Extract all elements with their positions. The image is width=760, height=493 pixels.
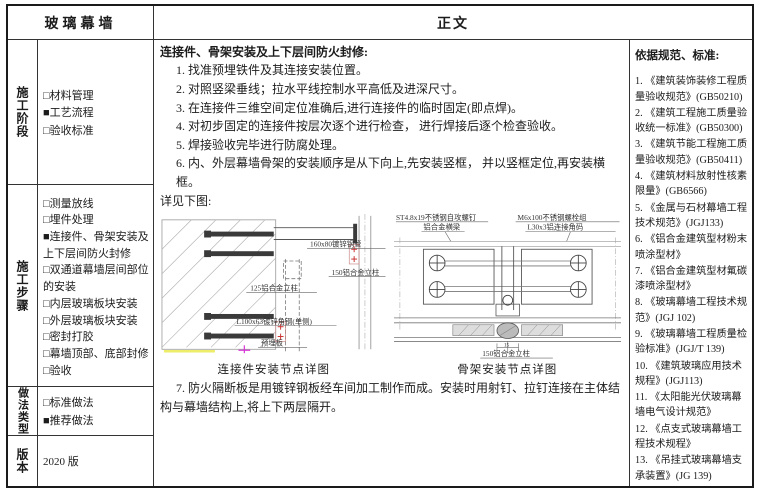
reference-item: 11. 《太阳能光伏玻璃幕墙电气设计规范》 — [635, 390, 748, 421]
checkbox-unchecked-icon: □ — [43, 315, 50, 327]
checkbox-checked-icon: ■ — [43, 107, 50, 119]
checklist-item: □验收标准 — [43, 123, 150, 141]
checklist-item: □标准做法 — [43, 395, 150, 413]
checklist-item-label: 验收 — [50, 365, 72, 377]
checklist-item: □验收 — [43, 363, 150, 380]
reference-item: 4. 《建筑材料放射性核素限量》(GB6566) — [635, 169, 748, 200]
section-label: 做法类型 — [8, 387, 38, 435]
section-label: 版本 — [8, 436, 38, 486]
checklist-item: □测量放线 — [43, 196, 150, 213]
step-1: 1. 找准预埋铁件及其连接安装位置。 — [160, 61, 621, 80]
label-aluminum-beam: 铝合金横梁 — [423, 222, 460, 231]
checklist-item: ■推荐做法 — [43, 413, 150, 431]
reference-item: 2. 《建筑工程施工质量验收统一标准》(GB50300) — [635, 106, 748, 137]
checklist-item: □密封打胶 — [43, 329, 150, 346]
diagram-row: 160x80镀锌钢管 150铝合金立柱 125铝合金立柱 L100x63镀锌角钢… — [160, 212, 621, 377]
section-label: 施工步骤 — [8, 185, 38, 386]
checklist-item-label: 材料管理 — [50, 90, 94, 102]
label-column-150: 150铝合金立柱 — [332, 267, 380, 276]
header-row: 玻璃幕墙 正文 — [8, 6, 752, 40]
section-construction-phase: 施工阶段 □材料管理 ■工艺流程 □验收标准 — [8, 40, 153, 185]
section-version: 版本 2020 版 — [8, 436, 153, 486]
checklist-item-label: 工艺流程 — [50, 107, 94, 119]
diagram-caption-right: 骨架安装节点详图 — [457, 361, 557, 377]
reference-item: 7. 《铝合金建筑型材氟碳漆喷涂型材》 — [635, 264, 748, 295]
diagram-framework-detail: ST4.8x19不锈钢自攻螺钉 铝合金横梁 M6x100不锈钢螺栓组 L30x3… — [394, 212, 622, 377]
checklist-item: ■工艺流程 — [43, 105, 150, 123]
checklist-item: ■连接件、骨架安装及上下层间防火封修 — [43, 229, 150, 262]
checkbox-unchecked-icon: □ — [43, 298, 50, 310]
main-content: 连接件、骨架安装及上下层间防火封修: 1. 找准预埋铁件及其连接安装位置。 2.… — [154, 40, 630, 486]
checklist-item: □内层玻璃板块安装 — [43, 296, 150, 313]
checklist-item: □埋件处理 — [43, 212, 150, 229]
step-4: 4. 对初步固定的连接件按层次逐个进行检查， 进行焊接后逐个检查验收。 — [160, 117, 621, 136]
checkbox-unchecked-icon: □ — [43, 348, 50, 360]
label-angle-steel: L100x63镀锌角钢(单侧) — [236, 316, 312, 325]
checklist-item-label: 验收标准 — [50, 125, 94, 137]
framework-detail-drawing: ST4.8x19不锈钢自攻螺钉 铝合金横梁 M6x100不锈钢螺栓组 L30x3… — [394, 212, 622, 359]
body-row: 施工阶段 □材料管理 ■工艺流程 □验收标准 施工步骤 □测量放线 □埋件处理 … — [8, 40, 752, 486]
checklist-item: □双通道幕墙层间部位的安装 — [43, 262, 150, 295]
label-dimension-15: 15 — [503, 342, 509, 348]
step-6: 6. 内、外层幕墙骨架的安装顺序是从下向上,先安装竖框， 并以竖框定位,再安装横… — [160, 154, 621, 191]
label-stainless-bolt: M6x100不锈钢螺栓组 — [517, 212, 587, 221]
document-sheet: 玻璃幕墙 正文 施工阶段 □材料管理 ■工艺流程 □验收标准 施工步骤 □测量放… — [6, 4, 754, 488]
step-7: 7. 防火隔断板是用镀锌钢板经车间加工制作而成。安装时用射钉、拉钉连接在主体结构… — [160, 379, 621, 417]
checkbox-unchecked-icon: □ — [43, 90, 50, 102]
reference-item: 8. 《玻璃幕墙工程技术规范》(JGJ 102) — [635, 295, 748, 326]
reference-item: 12. 《点支式玻璃幕墙工程技术规程》 — [635, 422, 748, 453]
checkbox-unchecked-icon: □ — [43, 331, 50, 343]
reference-item: 13. 《吊挂式玻璃幕墙支承装置》(JG 139) — [635, 453, 748, 484]
checkbox-checked-icon: ■ — [43, 415, 50, 427]
checkbox-unchecked-icon: □ — [43, 365, 50, 377]
references-title: 依据规范、标准: — [635, 48, 748, 65]
reference-item: 9. 《玻璃幕墙工程质量检验标准》(JGJ/T 139) — [635, 327, 748, 358]
checkbox-unchecked-icon: □ — [43, 264, 50, 276]
page-title-left: 玻璃幕墙 — [8, 6, 154, 39]
sidebar: 施工阶段 □材料管理 ■工艺流程 □验收标准 施工步骤 □测量放线 □埋件处理 … — [8, 40, 154, 486]
checklist-item-label: 推荐做法 — [50, 415, 94, 427]
diagram-caption-left: 连接件安装节点详图 — [218, 361, 331, 377]
label-self-tapping-screw: ST4.8x19不锈钢自攻螺钉 — [395, 212, 476, 221]
content-title: 连接件、骨架安装及上下层间防火封修: — [160, 44, 621, 61]
connector-detail-drawing: 160x80镀锌钢管 150铝合金立柱 125铝合金立柱 L100x63镀锌角钢… — [160, 212, 388, 359]
checklist-item: □外层玻璃板块安装 — [43, 313, 150, 330]
page-title-right: 正文 — [154, 6, 752, 39]
label-column-125: 125铝合金立柱 — [250, 283, 298, 292]
checkbox-unchecked-icon: □ — [43, 198, 50, 210]
checklist-item-label: 密封打胶 — [50, 331, 94, 343]
step-3: 3. 在连接件三维空间定位准确后,进行连接件的临时固定(即点焊)。 — [160, 99, 621, 118]
diagram-connector-detail: 160x80镀锌钢管 150铝合金立柱 125铝合金立柱 L100x63镀锌角钢… — [160, 212, 388, 377]
section-checklist: □材料管理 ■工艺流程 □验收标准 — [38, 40, 153, 184]
checklist-item: □幕墙顶部、底部封修 — [43, 346, 150, 363]
checkbox-unchecked-icon: □ — [43, 125, 50, 137]
reference-item: 6. 《铝合金建筑型材粉末喷涂型材》 — [635, 232, 748, 263]
references-panel: 依据规范、标准: 1. 《建筑装饰装修工程质量验收规范》(GB50210) 2.… — [630, 40, 752, 486]
reference-item: 5. 《金属与石材幕墙工程技术规范》(JGJ133) — [635, 201, 748, 232]
checklist-item-label: 埋件处理 — [50, 214, 94, 226]
step-5: 5. 焊接验收完毕进行防腐处理。 — [160, 136, 621, 155]
reference-item: 10. 《建筑玻璃应用技术规程》(JGJ113) — [635, 359, 748, 390]
reference-item: 3. 《建筑节能工程施工质量验收规范》(GB50411) — [635, 137, 748, 168]
label-steel-tube: 160x80镀锌钢管 — [310, 239, 361, 248]
label-connect-angle-code: L30x3铝连接角码 — [527, 222, 583, 231]
checklist-item-label: 测量放线 — [50, 198, 94, 210]
checklist-item-label: 连接件、骨架安装及上下层间防火封修 — [43, 231, 149, 260]
checklist-item-label: 标准做法 — [50, 397, 94, 409]
version-value: 2020 版 — [38, 436, 153, 486]
see-below-note: 详见下图: — [160, 192, 621, 210]
checkbox-checked-icon: ■ — [43, 231, 50, 243]
checklist-item: □材料管理 — [43, 88, 150, 106]
section-checklist: □标准做法 ■推荐做法 — [38, 387, 153, 435]
label-column-150-right: 150铝合金立柱 — [482, 349, 530, 358]
step-2: 2. 对照竖梁垂线；拉水平线控制水平高低及进深尺寸。 — [160, 80, 621, 99]
section-method-type: 做法类型 □标准做法 ■推荐做法 — [8, 387, 153, 436]
label-embedded-plate: 预埋板 — [261, 338, 284, 347]
checkbox-unchecked-icon: □ — [43, 397, 50, 409]
checklist-item-label: 外层玻璃板块安装 — [50, 315, 138, 327]
reference-item: 1. 《建筑装饰装修工程质量验收规范》(GB50210) — [635, 74, 748, 105]
section-checklist: □测量放线 □埋件处理 ■连接件、骨架安装及上下层间防火封修 □双通道幕墙层间部… — [38, 185, 153, 386]
checklist-item-label: 内层玻璃板块安装 — [50, 298, 138, 310]
section-label: 施工阶段 — [8, 40, 38, 184]
section-construction-steps: 施工步骤 □测量放线 □埋件处理 ■连接件、骨架安装及上下层间防火封修 □双通道… — [8, 185, 153, 387]
checklist-item-label: 双通道幕墙层间部位的安装 — [43, 264, 149, 293]
checklist-item-label: 幕墙顶部、底部封修 — [50, 348, 149, 360]
checkbox-unchecked-icon: □ — [43, 214, 50, 226]
